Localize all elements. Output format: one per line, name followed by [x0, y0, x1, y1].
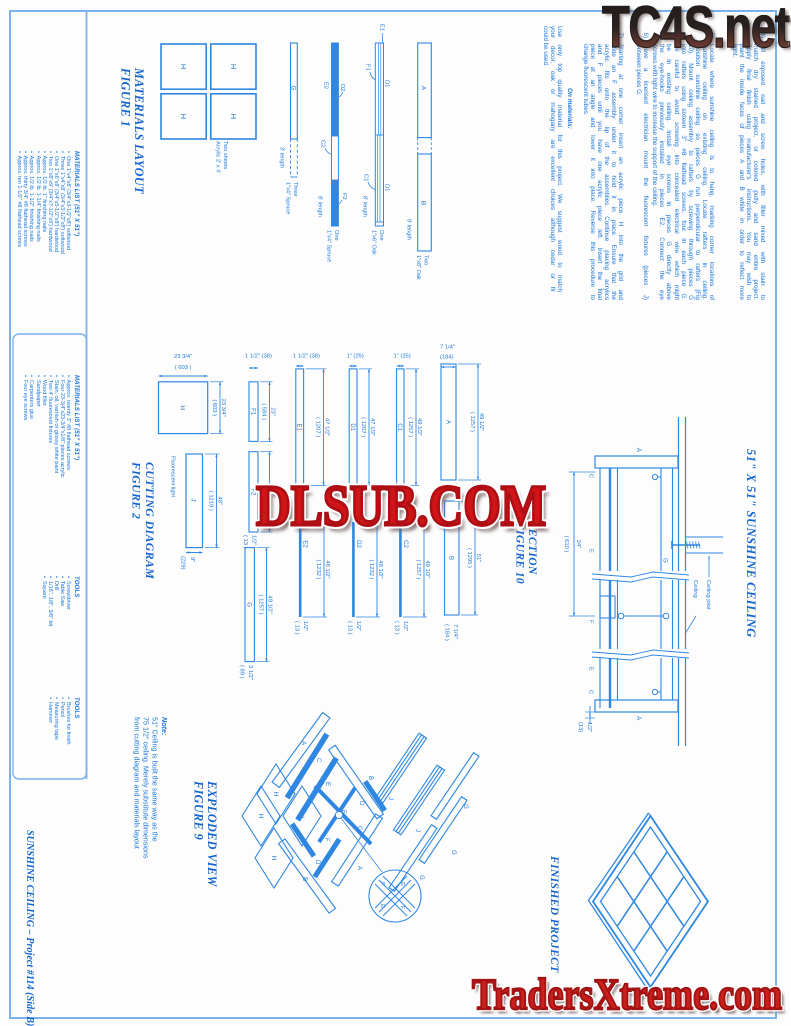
svg-text:75 1/2" ceiling. Merely substi: 75 1/2" ceiling. Merely substitute dimen…	[142, 717, 151, 859]
svg-text:D: D	[314, 860, 320, 865]
svg-text:( 1257 ): ( 1257 )	[415, 560, 421, 580]
svg-text:( 1207 ): ( 1207 )	[314, 417, 320, 437]
svg-text:7 1/4": 7 1/4"	[440, 345, 455, 351]
svg-text:C1: C1	[363, 174, 369, 181]
svg-text:( 603 ): ( 603 )	[211, 399, 217, 416]
svg-text:( 1257 ): ( 1257 )	[407, 417, 413, 437]
svg-text:1 1/2" (38): 1 1/2" (38)	[245, 354, 272, 360]
svg-text:H: H	[270, 856, 277, 860]
svg-text:(229): (229)	[180, 556, 186, 570]
svg-text:H: H	[257, 814, 264, 818]
svg-text:B: B	[448, 556, 454, 560]
svg-text:J: J	[190, 498, 197, 501]
svg-text:1"x4" Spruce: 1"x4" Spruce	[326, 230, 332, 262]
svg-text:G: G	[662, 558, 669, 563]
svg-text:J: J	[414, 829, 421, 832]
svg-text:F1: F1	[249, 408, 255, 416]
svg-text:F: F	[323, 838, 329, 842]
svg-text:One: One	[333, 230, 339, 241]
svg-text:( 13 ): ( 13 )	[394, 621, 400, 635]
svg-text:H: H	[272, 792, 279, 796]
svg-text:3' length: 3' length	[279, 147, 285, 168]
svg-text:MATERIALS LAYOUT: MATERIALS LAYOUT	[132, 67, 146, 194]
svg-text:H: H	[229, 114, 238, 119]
svg-text:49 1/2": 49 1/2"	[478, 413, 484, 431]
svg-text:G: G	[290, 86, 296, 91]
svg-text:A: A	[420, 86, 427, 91]
svg-text:C2: C2	[402, 540, 408, 548]
svg-text:7 1/4": 7 1/4"	[452, 624, 458, 639]
svg-text:from cutting diagram and mater: from cutting diagram and materials layou…	[133, 717, 142, 849]
svg-text:47 1/2": 47 1/2"	[324, 418, 330, 436]
svg-text:1"x8" Oak: 1"x8" Oak	[415, 255, 421, 280]
svg-text:8' length: 8' length	[317, 196, 323, 217]
svg-text:23 3/4": 23 3/4"	[174, 354, 192, 360]
svg-text:( 1232 ): ( 1232 )	[315, 560, 321, 580]
svg-text:H: H	[179, 405, 186, 410]
svg-text:1/2": 1/2"	[402, 621, 408, 631]
svg-text:47 1/2": 47 1/2"	[369, 418, 375, 436]
svg-text:24": 24"	[575, 540, 581, 549]
svg-text:A: A	[635, 448, 642, 453]
svg-text:FIGURE 9: FIGURE 9	[192, 780, 206, 840]
svg-text:1" (25): 1" (25)	[394, 354, 411, 360]
svg-text:1/2": 1/2"	[355, 621, 361, 631]
svg-text:Two: Two	[423, 255, 429, 265]
svg-text:( 13 ): ( 13 )	[242, 535, 248, 549]
svg-text:C1: C1	[396, 423, 402, 431]
svg-text:FINISHED PROJECT: FINISHED PROJECT	[548, 855, 560, 973]
svg-text:1"x6" Oak: 1"x6" Oak	[371, 230, 377, 255]
svg-text:( 610 ): ( 610 )	[563, 536, 569, 553]
svg-text:EXPLODED VIEW: EXPLODED VIEW	[205, 780, 219, 888]
svg-text:C2: C2	[320, 140, 326, 147]
svg-text:( 584 ): ( 584 )	[260, 403, 266, 420]
svg-text:1"x4" Spruce: 1"x4" Spruce	[285, 182, 291, 214]
svg-text:49 1/2": 49 1/2"	[416, 418, 422, 436]
svg-text:E: E	[324, 782, 331, 786]
svg-text:F2: F2	[341, 193, 347, 200]
svg-text:D1: D1	[384, 80, 390, 87]
svg-text:E: E	[588, 549, 594, 553]
svg-text:A: A	[635, 716, 642, 721]
svg-text:H: H	[179, 64, 188, 69]
svg-text:FIGURE 2: FIGURE 2	[130, 461, 144, 519]
svg-text:C: C	[315, 758, 322, 763]
svg-text:G: G	[246, 602, 252, 607]
svg-text:( 1257 ): ( 1257 )	[257, 595, 263, 615]
svg-text:F2: F2	[249, 488, 255, 496]
svg-text:E1: E1	[296, 423, 302, 431]
svg-text:51": 51"	[475, 554, 481, 563]
svg-text:E: E	[379, 904, 385, 908]
svg-text:C: C	[588, 690, 594, 694]
svg-text:H: H	[229, 64, 238, 69]
svg-text:(184): (184)	[440, 355, 454, 361]
svg-text:( 1232 ): ( 1232 )	[368, 560, 374, 580]
svg-text:48 1/2": 48 1/2"	[324, 560, 330, 578]
svg-text:A: A	[300, 741, 307, 746]
svg-text:( 603 ): ( 603 )	[175, 365, 192, 371]
svg-text:H: H	[179, 114, 188, 119]
svg-text:( 1295 ): ( 1295 )	[466, 548, 472, 568]
svg-text:B: B	[420, 201, 427, 206]
svg-text:1/2": 1/2"	[302, 621, 308, 631]
svg-text:E2: E2	[302, 540, 308, 548]
svg-text:G: G	[418, 875, 425, 880]
svg-text:Fluorescent light: Fluorescent light	[170, 456, 176, 497]
svg-text:Two sheets: Two sheets	[222, 141, 228, 169]
svg-text:Acrylic 2' x 4': Acrylic 2' x 4'	[215, 141, 221, 173]
svg-text:D2: D2	[355, 540, 361, 548]
svg-text:1 1/2" (38): 1 1/2" (38)	[293, 354, 320, 360]
svg-text:8' length: 8' length	[362, 196, 368, 217]
svg-text:Ceiling joist: Ceiling joist	[705, 580, 711, 610]
svg-text:48 1/2": 48 1/2"	[377, 560, 383, 578]
svg-text:( 1257 ): ( 1257 )	[469, 412, 475, 432]
svg-text:A: A	[356, 866, 363, 871]
svg-text:51" Ceiling is built the same: 51" Ceiling is built the same way as the	[151, 717, 160, 842]
svg-text:9' length: 9' length	[406, 219, 412, 240]
svg-text:( 1207 ): ( 1207 )	[360, 417, 366, 437]
svg-text:Ceiling: Ceiling	[692, 580, 698, 598]
svg-text:B: B	[367, 776, 374, 780]
svg-text:E: E	[588, 667, 594, 671]
svg-text:E1: E1	[379, 24, 385, 31]
svg-text:C: C	[356, 826, 362, 831]
svg-text:B: B	[301, 877, 308, 881]
svg-text:( 1219 ): ( 1219 )	[207, 491, 213, 511]
svg-text:49 1/2": 49 1/2"	[424, 560, 430, 578]
svg-text:1" (25): 1" (25)	[347, 354, 364, 360]
svg-text:48": 48"	[217, 497, 223, 506]
svg-text:3 1/2": 3 1/2"	[247, 665, 253, 680]
svg-text:Note:: Note:	[160, 717, 169, 736]
svg-text:1/2": 1/2"	[586, 722, 592, 732]
svg-text:D1: D1	[349, 423, 355, 431]
svg-text:E2: E2	[323, 82, 329, 89]
svg-text:Three: Three	[292, 182, 298, 197]
svg-text:F: F	[340, 810, 346, 814]
svg-text:D: D	[358, 801, 364, 806]
svg-text:23 3/4": 23 3/4"	[220, 399, 226, 417]
svg-text:F: F	[588, 620, 594, 624]
svg-text:( 89 ): ( 89 )	[239, 665, 245, 679]
svg-text:J: J	[387, 797, 394, 800]
svg-text:FIGURE 1: FIGURE 1	[119, 67, 133, 127]
svg-text:49 1/2": 49 1/2"	[267, 596, 273, 614]
svg-text:( 184 ): ( 184 )	[444, 624, 450, 641]
svg-text:( 13 ): ( 13 )	[294, 621, 300, 635]
svg-text:F: F	[379, 882, 385, 886]
svg-text:F1: F1	[365, 64, 371, 71]
svg-text:C: C	[588, 474, 594, 478]
svg-text:9": 9"	[189, 557, 195, 562]
svg-text:G: G	[450, 850, 457, 855]
svg-text:D1: D1	[384, 184, 390, 191]
svg-text:CUTTING DIAGRAM: CUTTING DIAGRAM	[143, 462, 157, 579]
svg-text:F: F	[399, 906, 405, 910]
svg-text:One: One	[378, 230, 384, 241]
svg-text:23": 23"	[270, 407, 276, 416]
svg-text:(13): (13)	[577, 722, 583, 732]
svg-text:D2: D2	[339, 84, 345, 91]
svg-text:A: A	[444, 420, 450, 424]
svg-text:( 13 ): ( 13 )	[347, 621, 353, 635]
